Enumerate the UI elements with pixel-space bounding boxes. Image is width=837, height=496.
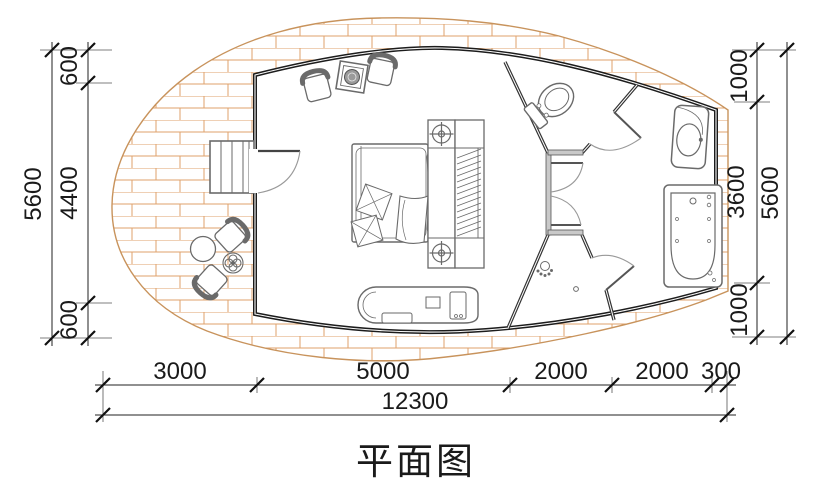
- dim-label: 3000: [153, 358, 206, 385]
- dim-label: 600: [56, 300, 83, 340]
- dim-label: 4400: [56, 166, 83, 219]
- dim-label: 12300: [382, 388, 449, 415]
- dim-label: 5600: [20, 167, 47, 220]
- toilet-room-wall: [548, 150, 583, 155]
- round-table: [191, 237, 216, 262]
- shower-room-wall: [548, 230, 583, 235]
- floor-plan-svg: 600 4400 600 5600 1000 3600 1000 5600 30…: [0, 0, 837, 496]
- sink-vanity: [671, 105, 709, 169]
- wardrobe: [455, 120, 484, 268]
- bathtub: [664, 185, 722, 287]
- dim-label: 2000: [534, 358, 587, 385]
- fireplace-stove: [336, 61, 368, 93]
- lounge-tub: [358, 287, 478, 323]
- drawing-title: 平面图: [356, 441, 476, 482]
- stairs: [210, 141, 254, 193]
- dim-label: 5600: [757, 166, 784, 219]
- headboard-nightstand: [428, 120, 455, 268]
- dim-label: 3600: [723, 165, 750, 218]
- duvet: [396, 196, 428, 243]
- dim-label: 2000: [635, 358, 688, 385]
- dim-label: 1000: [726, 283, 753, 336]
- dim-label: 300: [701, 358, 741, 385]
- floor-plan-page: 600 4400 600 5600 1000 3600 1000 5600 30…: [0, 0, 837, 496]
- dim-label: 1000: [726, 49, 753, 102]
- dim-label: 600: [56, 46, 83, 86]
- corridor-wall: [546, 153, 551, 235]
- dim-label: 5000: [356, 358, 409, 385]
